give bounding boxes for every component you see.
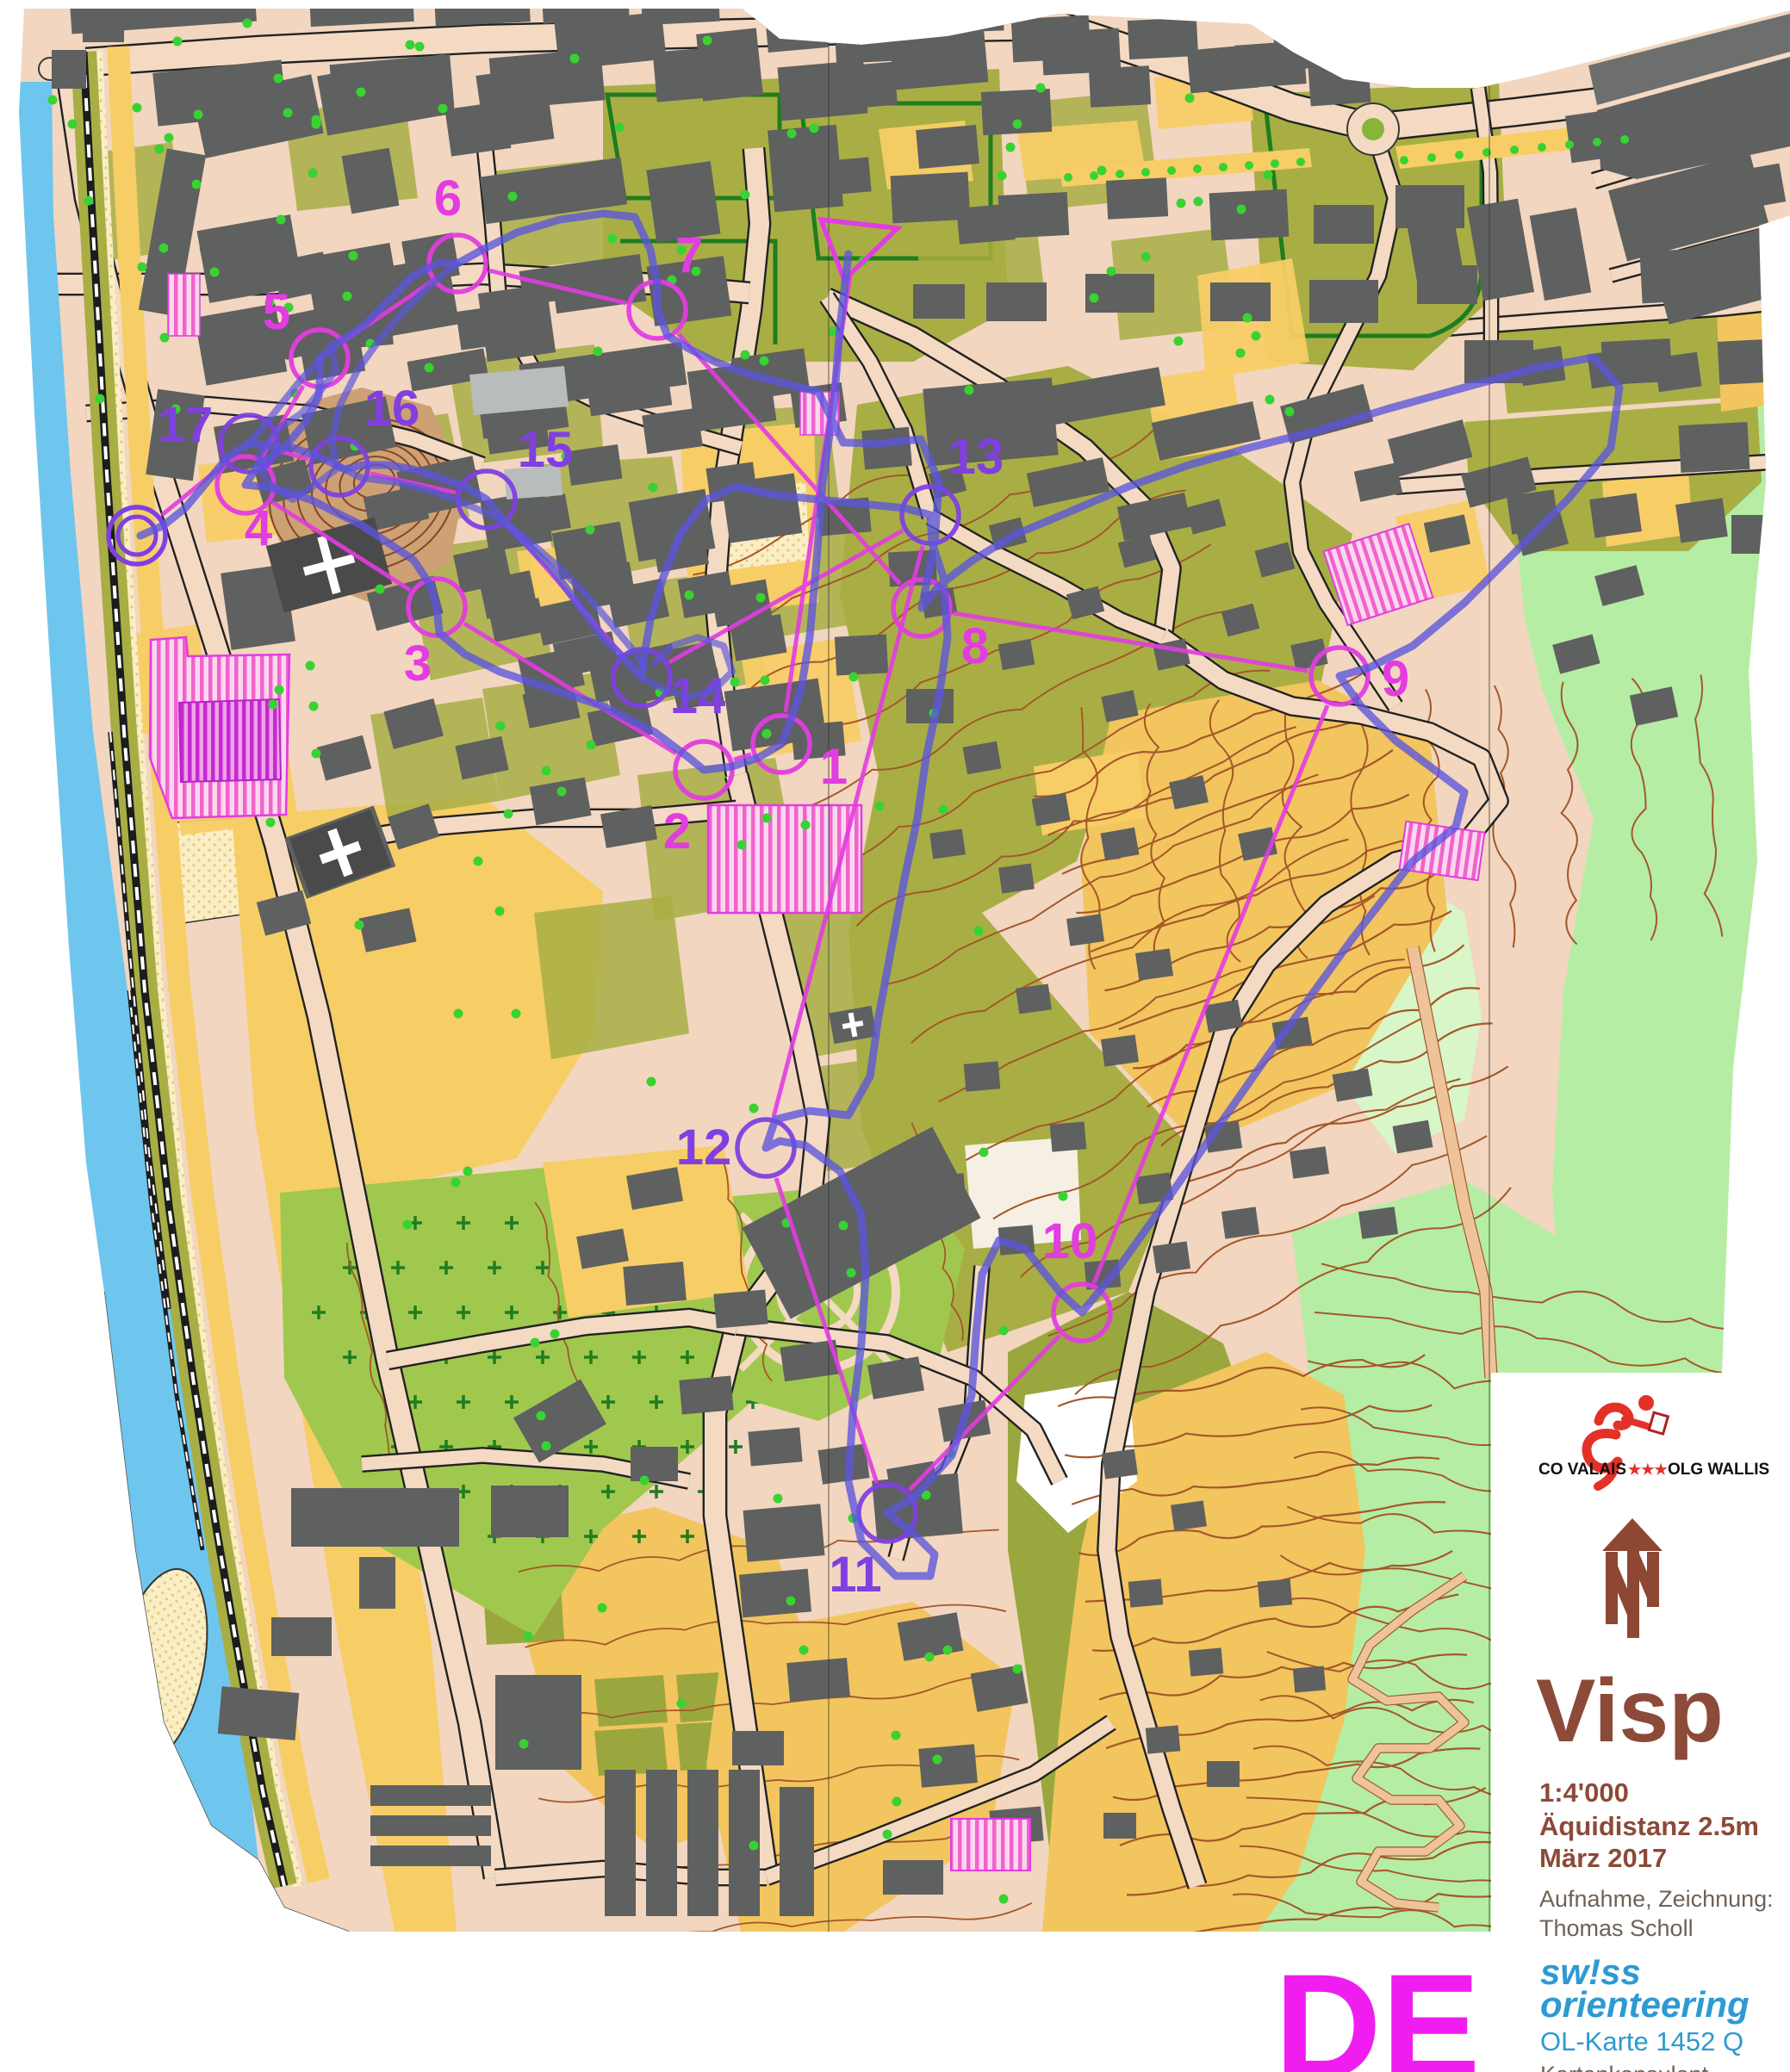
svg-text:3: 3: [404, 636, 432, 692]
svg-text:★★★: ★★★: [1628, 1461, 1668, 1478]
svg-text:OL-Karte 1452 Q: OL-Karte 1452 Q: [1540, 2026, 1743, 2056]
svg-text:7: 7: [675, 227, 703, 283]
svg-text:2: 2: [663, 803, 691, 859]
svg-text:März 2017: März 2017: [1539, 1843, 1667, 1873]
svg-text:Thomas Scholl: Thomas Scholl: [1539, 1915, 1694, 1941]
svg-text:1: 1: [820, 739, 848, 795]
svg-text:13: 13: [948, 429, 1004, 485]
svg-text:Kartenkonsulent: Kartenkonsulent: [1540, 2062, 1709, 2072]
svg-text:6: 6: [434, 171, 462, 226]
svg-text:1:4'000: 1:4'000: [1539, 1777, 1629, 1808]
svg-text:OLG WALLIS: OLG WALLIS: [1668, 1461, 1769, 1479]
svg-text:16: 16: [364, 381, 420, 437]
svg-text:15: 15: [518, 422, 574, 478]
svg-text:10: 10: [1042, 1213, 1098, 1269]
svg-text:Visp: Visp: [1536, 1661, 1724, 1761]
svg-text:Aufnahme, Zeichnung:: Aufnahme, Zeichnung:: [1539, 1886, 1774, 1912]
svg-text:8: 8: [961, 618, 989, 674]
svg-text:4: 4: [245, 500, 272, 556]
svg-text:CO VALAIS: CO VALAIS: [1538, 1461, 1626, 1479]
svg-text:12: 12: [676, 1120, 732, 1176]
svg-text:5: 5: [263, 284, 290, 340]
svg-text:Äquidistanz 2.5m: Äquidistanz 2.5m: [1539, 1811, 1759, 1841]
svg-text:17: 17: [158, 397, 214, 453]
svg-text:orienteering: orienteering: [1540, 1984, 1750, 2025]
svg-text:DE: DE: [1275, 1944, 1481, 2072]
